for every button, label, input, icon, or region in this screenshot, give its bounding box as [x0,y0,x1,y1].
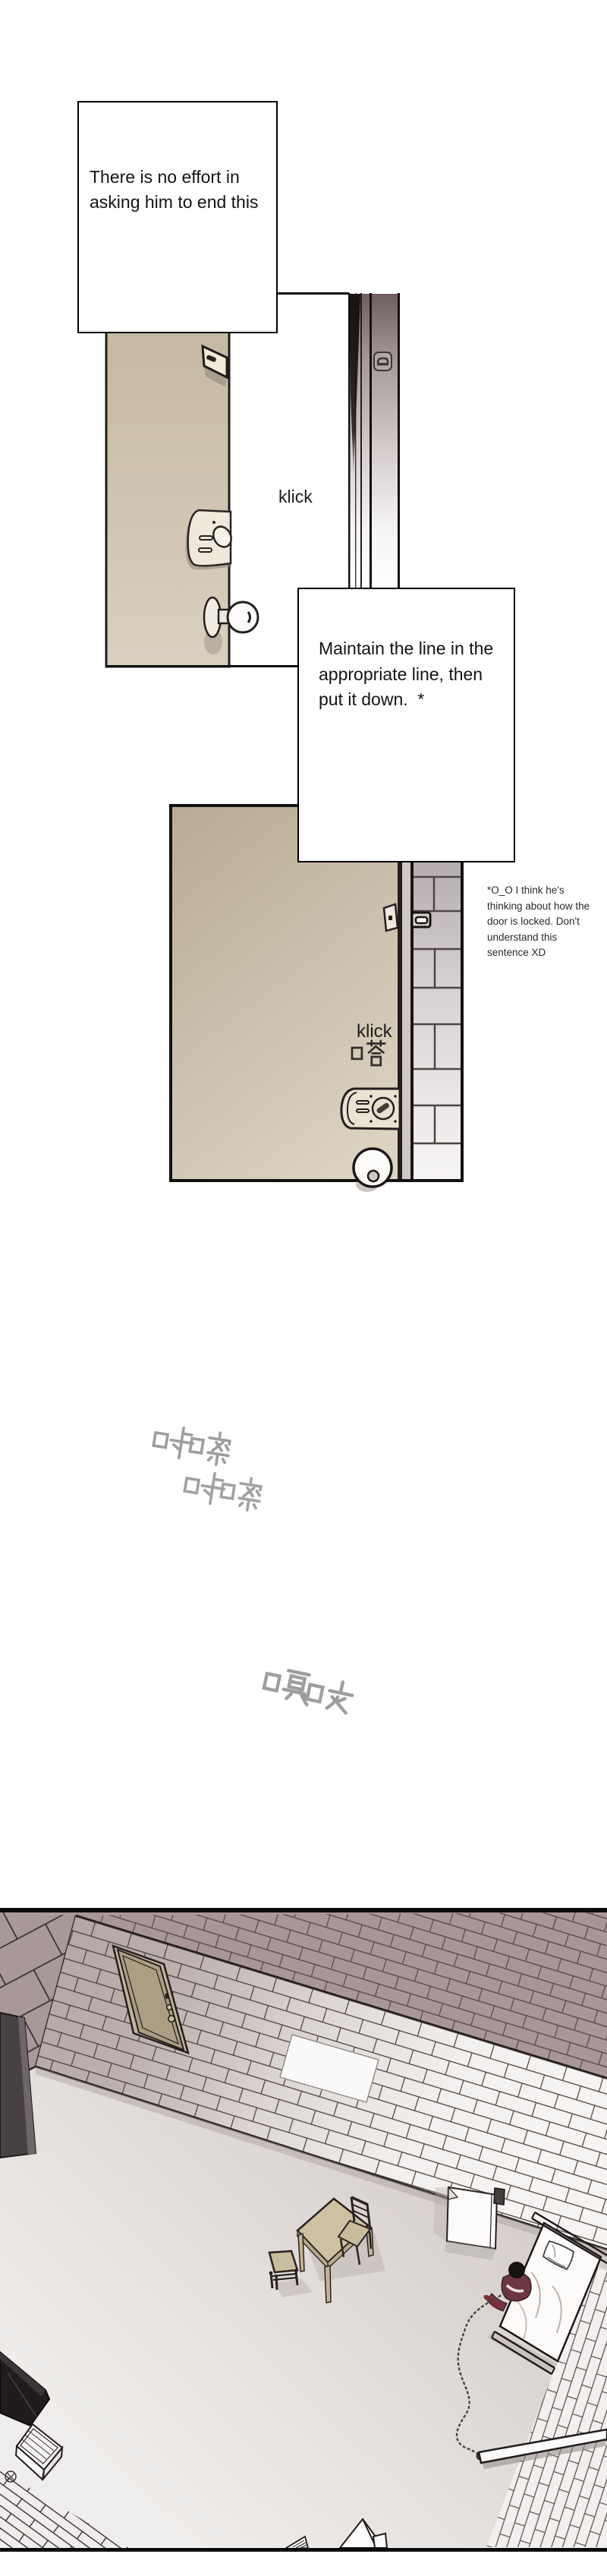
svg-text:klick: klick [278,487,313,506]
